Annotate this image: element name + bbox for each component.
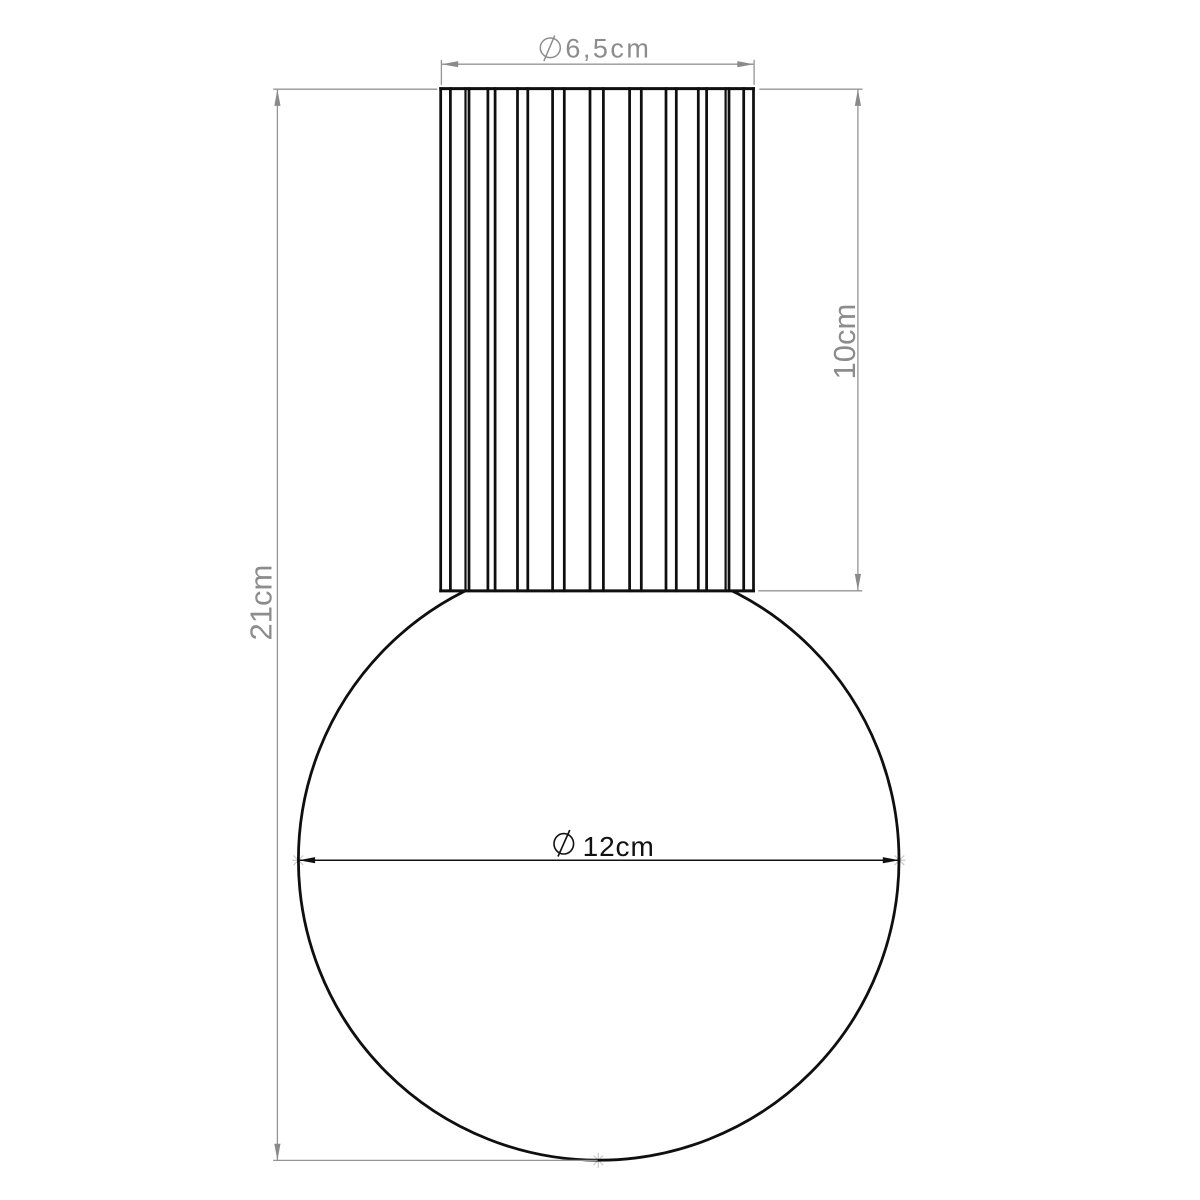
svg-text:6,5cm: 6,5cm xyxy=(565,34,651,64)
svg-text:10cm: 10cm xyxy=(827,304,862,380)
svg-text:12cm: 12cm xyxy=(583,831,655,862)
svg-text:21cm: 21cm xyxy=(244,565,279,641)
